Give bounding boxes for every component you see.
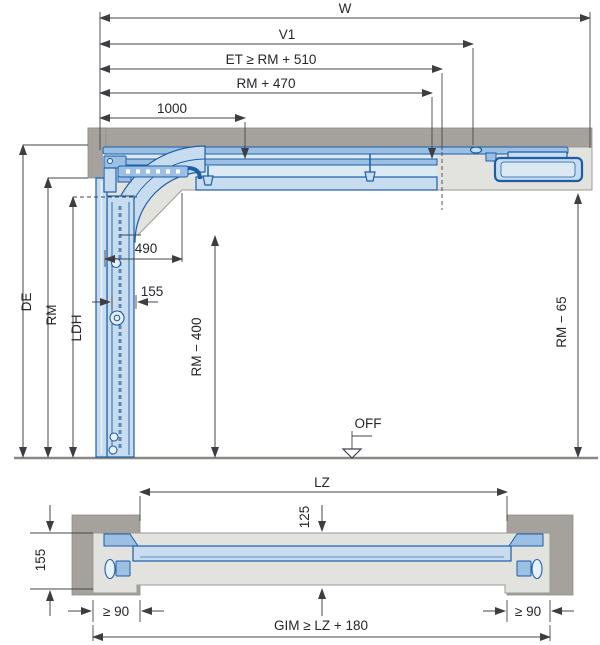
track-roller	[112, 259, 121, 268]
left-roller-bracket	[116, 561, 130, 576]
dimension-ge90-left: ≥ 90	[68, 600, 164, 622]
off-label: OFF	[355, 416, 382, 431]
dimension-label-w: W	[339, 1, 352, 16]
dimension-rm-minus-65: RM − 65	[554, 194, 578, 457]
left-roller	[105, 560, 115, 579]
dimension-label-ldh: LDH	[69, 314, 84, 341]
cable-drum	[108, 159, 113, 164]
dimension-label-1000: 1000	[157, 101, 187, 116]
dimension-label-rm-minus-65: RM − 65	[554, 296, 569, 347]
rail-fixing-point	[471, 147, 482, 153]
bracket-hole	[156, 170, 160, 174]
plan-view: LZ 125 155 ≥ 90	[30, 475, 574, 641]
installation-diagram: W V1 ET ≥ RM + 510 RM + 470 1000 DE	[0, 0, 600, 645]
bracket-hole	[176, 170, 180, 174]
dimension-label-125: 125	[297, 506, 312, 529]
hanger-foot	[203, 176, 213, 185]
dimension-label-155: 155	[141, 284, 164, 299]
dimension-label-rm: RM	[44, 305, 59, 326]
dimension-ge90-right: ≥ 90	[483, 600, 574, 622]
right-roller-bracket	[517, 561, 531, 576]
dimension-label-155-plan: 155	[33, 549, 48, 572]
bracket-hole	[126, 170, 130, 174]
dimension-lz: LZ	[140, 475, 507, 521]
dimension-de: DE	[19, 145, 88, 457]
right-roller	[532, 560, 542, 579]
dimension-gim: GIM ≥ LZ + 180	[93, 618, 550, 641]
dimension-label-ge90-left: ≥ 90	[103, 604, 129, 619]
dimension-label-v1: V1	[279, 27, 296, 42]
datum-triangle	[343, 449, 361, 458]
rail-connector	[486, 153, 496, 161]
dimension-label-lz: LZ	[314, 475, 330, 490]
bracket-hole	[166, 170, 170, 174]
dimension-label-rm470: RM + 470	[237, 76, 296, 91]
bracket-hole	[146, 170, 150, 174]
dimension-label-490: 490	[135, 241, 158, 256]
side-view: W V1 ET ≥ RM + 510 RM + 470 1000 DE	[14, 1, 598, 458]
lintel-wall	[88, 128, 592, 147]
off-datum: OFF	[343, 416, 382, 458]
dimension-label-gim: GIM ≥ LZ + 180	[274, 618, 368, 633]
bracket-hole	[136, 170, 140, 174]
horizontal-track-lower-rail	[196, 177, 437, 190]
track-roller-lower	[110, 433, 118, 441]
operator-head-cover	[501, 162, 575, 177]
dimension-label-ge90-right: ≥ 90	[515, 604, 541, 619]
track-roller-hub	[114, 315, 120, 321]
dimension-label-rm-minus-400: RM − 400	[189, 318, 204, 377]
door-panel-plan	[133, 546, 511, 561]
track-roller-bottom	[109, 446, 117, 454]
dimension-label-de: DE	[19, 293, 34, 312]
dimension-label-et: ET ≥ RM + 510	[226, 52, 317, 67]
frame-section	[93, 533, 550, 593]
datum-leader-line	[352, 431, 372, 449]
hanger-foot	[365, 172, 375, 181]
diagram-svg: W V1 ET ≥ RM + 510 RM + 470 1000 DE	[0, 0, 600, 645]
corner-bracket-vertical	[104, 168, 116, 192]
